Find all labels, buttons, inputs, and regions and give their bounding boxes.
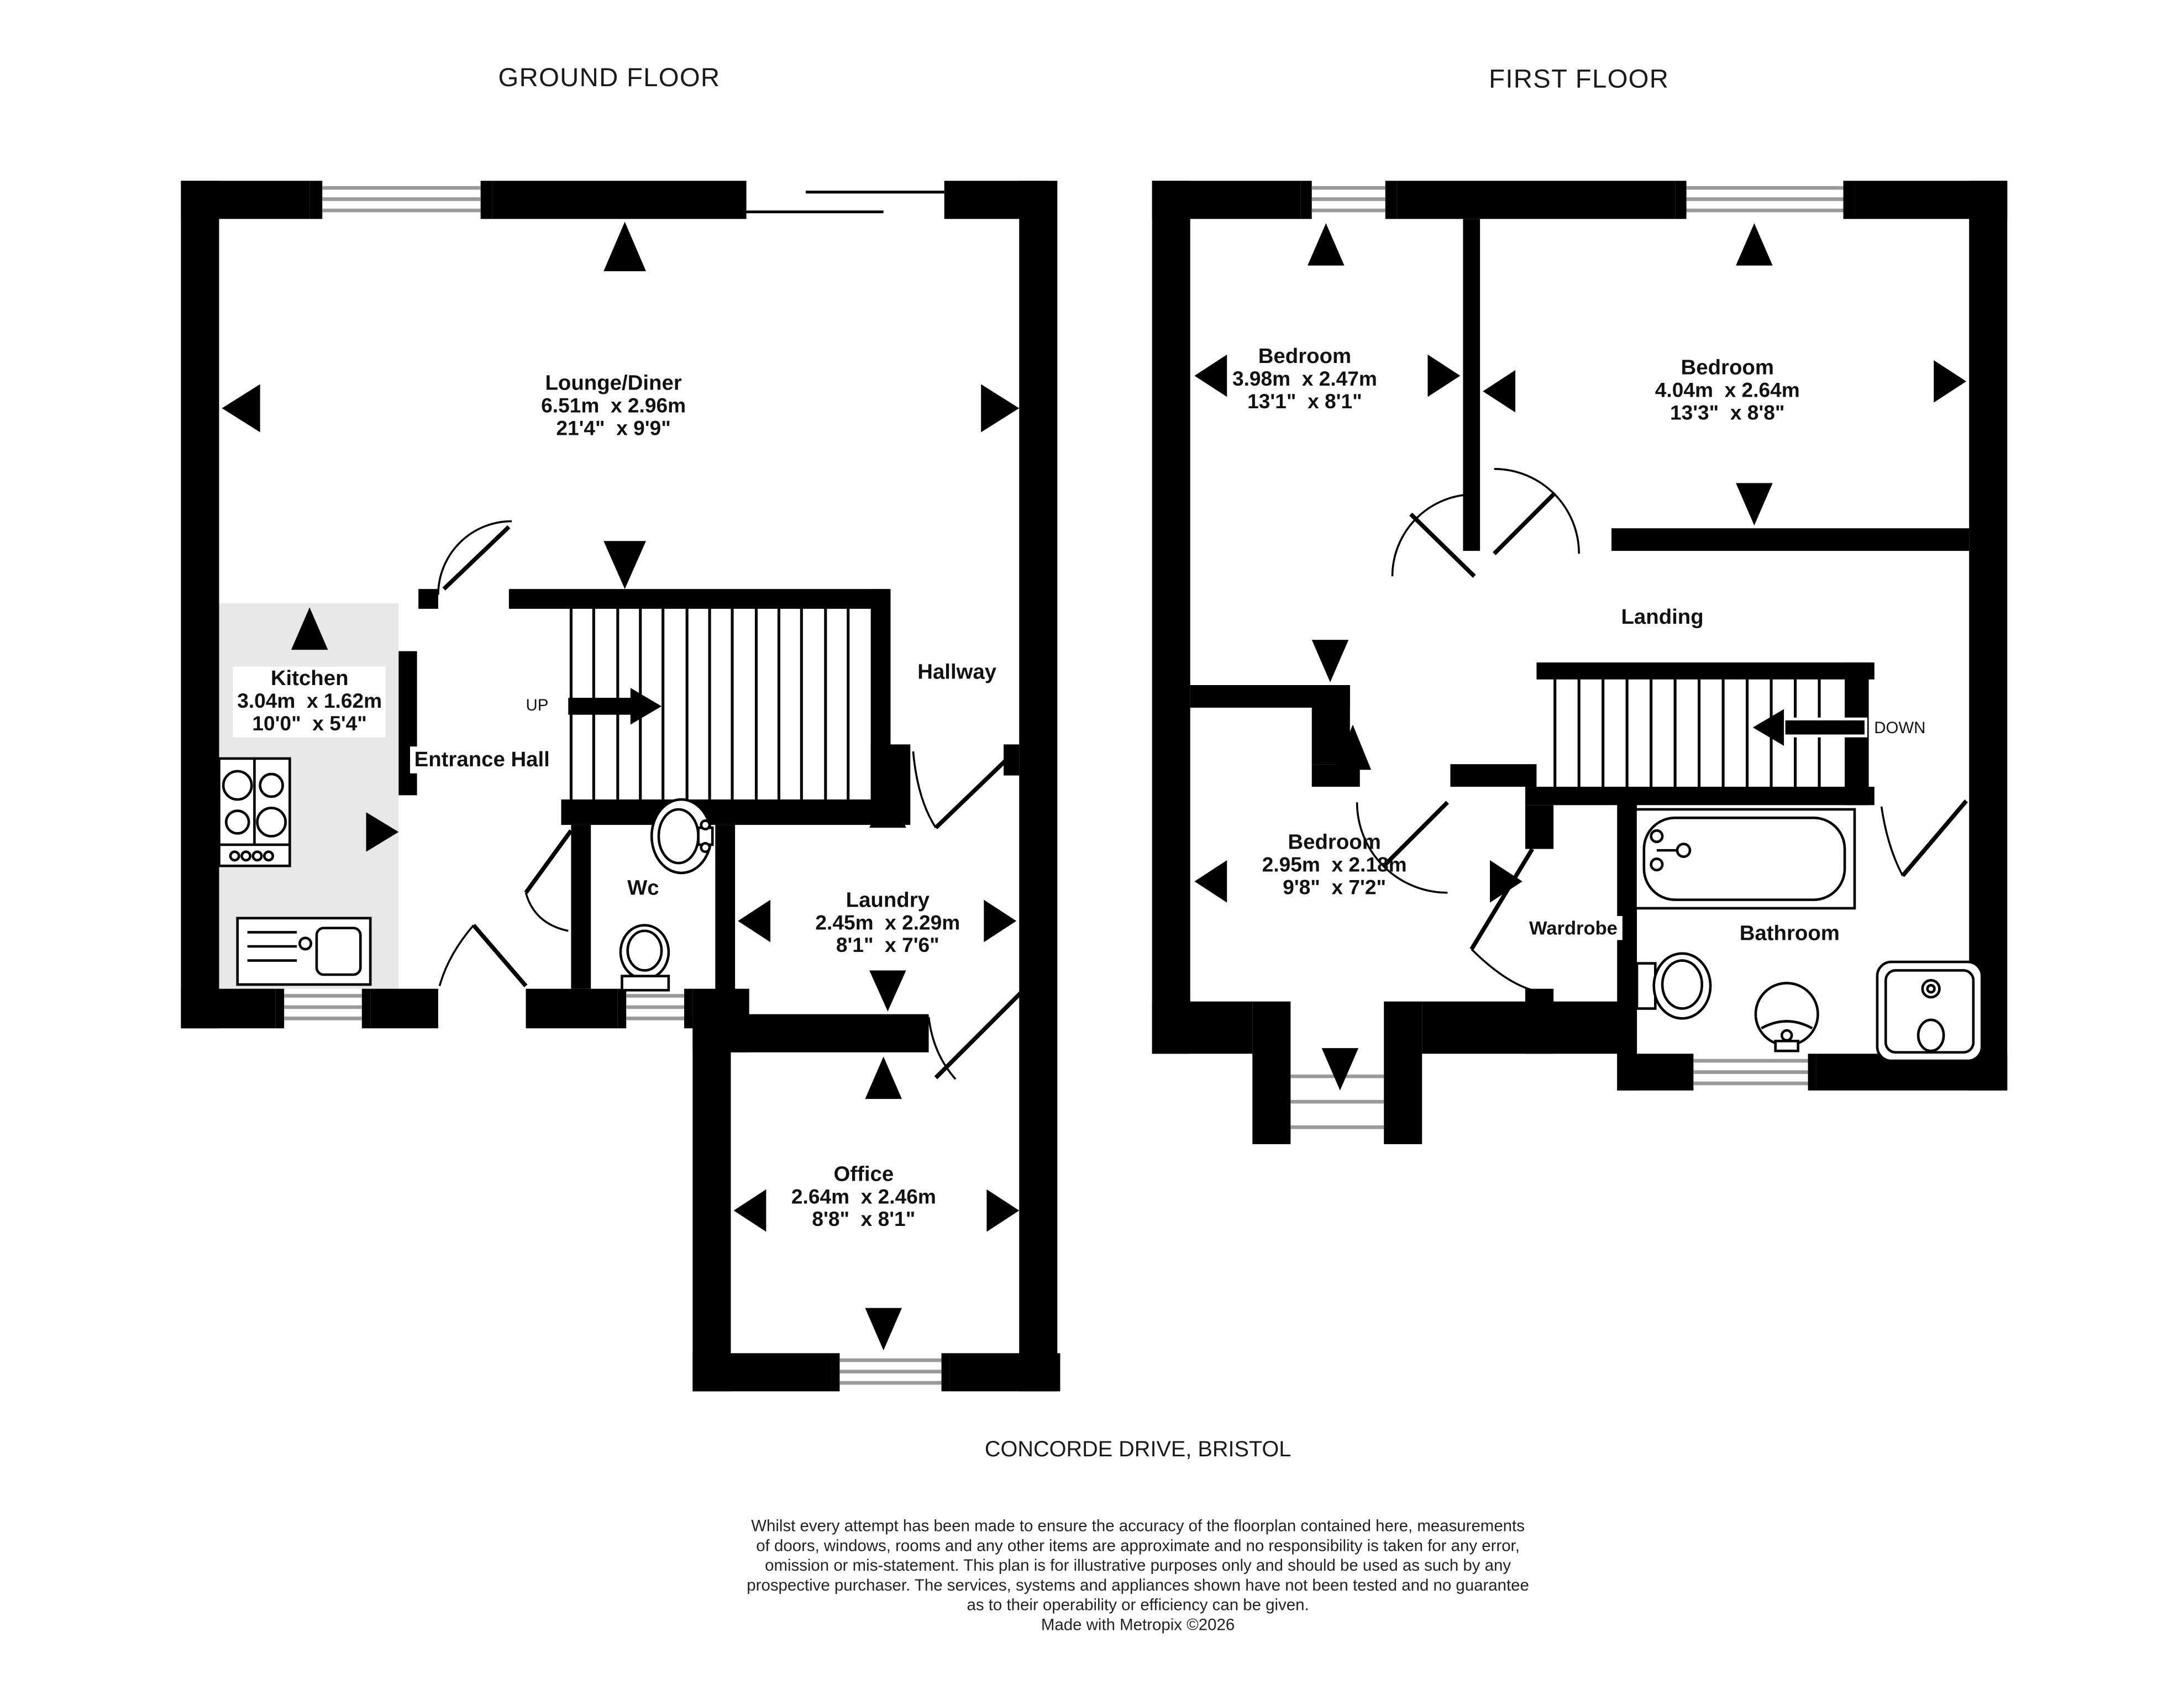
wall bbox=[1617, 1054, 1685, 1090]
window-post bbox=[1675, 181, 1686, 219]
lounge-door bbox=[438, 521, 512, 594]
window-post bbox=[309, 181, 322, 219]
window-post bbox=[1685, 1054, 1693, 1090]
measure-arrow-left-icon bbox=[738, 900, 770, 943]
window-post bbox=[481, 181, 492, 219]
wall bbox=[692, 1014, 731, 1392]
wall bbox=[398, 651, 417, 796]
window-post bbox=[618, 989, 626, 1029]
measure-arrow-right-icon bbox=[1934, 360, 1966, 403]
hob-icon bbox=[219, 759, 290, 866]
room-label-bedroom-1: Bedroom 3.98m x 2.47m 13'1" x 8'1" bbox=[1232, 346, 1377, 414]
room-dim-metric: 3.04m x 1.62m bbox=[237, 691, 382, 713]
floorplan-canvas: GROUND FLOOR FIRST FLOOR Lounge/Diner 6.… bbox=[0, 0, 2184, 1695]
measure-arrow-up-icon bbox=[865, 1056, 902, 1099]
room-label-bedroom-3: Bedroom 2.95m x 2.18m 9'8" x 7'2" bbox=[1262, 832, 1407, 900]
room-dim-imperial: 8'1" x 7'6" bbox=[815, 935, 960, 958]
window-post bbox=[362, 989, 370, 1029]
measure-arrow-left-icon bbox=[1194, 860, 1227, 903]
wall bbox=[1397, 181, 1675, 219]
wc-window bbox=[626, 996, 684, 1018]
wall bbox=[1969, 181, 2007, 1091]
room-name: Office bbox=[791, 1164, 936, 1187]
room-label-bedroom-2: Bedroom 4.04m x 2.64m 13'3" x 8'8" bbox=[1655, 357, 1800, 425]
window-post bbox=[1385, 181, 1397, 219]
room-dim-metric: 4.04m x 2.64m bbox=[1655, 380, 1800, 403]
window-post bbox=[1844, 181, 1855, 219]
wall bbox=[526, 989, 618, 1029]
wall bbox=[715, 825, 735, 1014]
window-post bbox=[684, 989, 692, 1029]
room-name: Laundry bbox=[815, 890, 960, 913]
room-label-office: Office 2.64m x 2.46m 8'8" x 8'1" bbox=[791, 1164, 936, 1232]
pedestal-sink-icon bbox=[1756, 983, 1818, 1051]
window-post bbox=[1300, 181, 1311, 219]
measure-arrow-up-icon bbox=[603, 222, 646, 271]
wall bbox=[1536, 662, 1874, 680]
wall bbox=[509, 589, 886, 609]
ground-floor-title: GROUND FLOOR bbox=[498, 62, 721, 93]
room-name: Bedroom bbox=[1655, 357, 1800, 380]
wall bbox=[370, 989, 438, 1029]
measure-arrow-down-icon bbox=[1312, 640, 1349, 682]
stairs-up bbox=[568, 609, 848, 799]
measure-arrow-right-icon bbox=[984, 900, 1016, 943]
room-label-lounge-diner: Lounge/Diner 6.51m x 2.96m 21'4" x 9'9" bbox=[541, 373, 686, 441]
room-label-kitchen: Kitchen 3.04m x 1.62m 10'0" x 5'4" bbox=[233, 667, 386, 738]
room-name: Lounge/Diner bbox=[541, 373, 686, 396]
window-post bbox=[1808, 1054, 1817, 1090]
lounge-window bbox=[322, 188, 480, 210]
room-label-laundry: Laundry 2.45m x 2.29m 8'1" x 7'6" bbox=[815, 890, 960, 958]
stairs-down bbox=[1555, 680, 1866, 787]
measure-arrow-right-icon bbox=[986, 1189, 1019, 1232]
room-name: Bedroom bbox=[1262, 832, 1407, 855]
room-dim-metric: 2.95m x 2.18m bbox=[1262, 855, 1407, 877]
room-dim-imperial: 13'1" x 8'1" bbox=[1232, 391, 1377, 414]
room-dim-imperial: 8'8" x 8'1" bbox=[791, 1209, 936, 1232]
wall bbox=[1152, 1002, 1253, 1054]
open-divider-lines bbox=[747, 192, 944, 212]
hallway-door bbox=[913, 751, 1012, 828]
wc-toilet-icon bbox=[621, 925, 669, 991]
room-label-wardrobe: Wardrobe bbox=[1525, 916, 1621, 940]
wall bbox=[181, 181, 219, 1028]
room-label-hallway: Hallway bbox=[917, 660, 996, 684]
room-label-landing: Landing bbox=[1621, 606, 1703, 629]
wall bbox=[1019, 181, 1057, 1391]
measure-arrow-right-icon bbox=[1427, 355, 1460, 397]
room-dim-metric: 2.64m x 2.46m bbox=[791, 1187, 936, 1209]
disclaimer-line: of doors, windows, rooms and any other i… bbox=[747, 1537, 1529, 1557]
window-post bbox=[276, 989, 284, 1029]
measure-arrow-up-icon bbox=[1308, 223, 1345, 266]
shower-icon bbox=[1877, 962, 1982, 1061]
stairs-up-label: UP bbox=[526, 698, 549, 715]
toilet-icon bbox=[1637, 954, 1710, 1019]
measure-arrow-down-icon bbox=[1322, 1048, 1359, 1091]
disclaimer-line: as to their operability or efficiency ca… bbox=[747, 1596, 1529, 1616]
wc-basin-icon bbox=[652, 799, 712, 873]
first-floor-plan bbox=[1152, 181, 2008, 1144]
wall bbox=[561, 799, 890, 825]
room-dim-imperial: 21'4" x 9'9" bbox=[541, 418, 686, 441]
wall bbox=[1252, 1002, 1290, 1144]
disclaimer-line: Whilst every attempt has been made to en… bbox=[747, 1517, 1529, 1537]
bedroom1-window bbox=[1312, 188, 1385, 210]
measure-arrow-down-icon bbox=[1736, 483, 1773, 525]
office-door bbox=[929, 993, 1021, 1079]
kitchen-sink-icon bbox=[238, 918, 370, 985]
wc-door bbox=[526, 830, 571, 931]
room-dim-metric: 2.45m x 2.29m bbox=[815, 913, 960, 935]
room-dim-imperial: 13'3" x 8'8" bbox=[1655, 403, 1800, 425]
bedroom2-window bbox=[1687, 188, 1844, 210]
measure-arrow-down-icon bbox=[603, 541, 646, 589]
room-label-entrance-hall: Entrance Hall bbox=[410, 746, 554, 773]
wall bbox=[1525, 989, 1553, 1054]
up-arrow-icon bbox=[568, 688, 662, 724]
property-address: CONCORDE DRIVE, BRISTOL bbox=[985, 1438, 1291, 1464]
room-name: Kitchen bbox=[237, 668, 382, 691]
wall bbox=[492, 181, 746, 219]
room-name: Bedroom bbox=[1232, 346, 1377, 369]
measure-arrow-down-icon bbox=[865, 1308, 902, 1351]
bathtub-icon bbox=[1635, 809, 1854, 908]
measure-arrow-left-icon bbox=[734, 1189, 767, 1232]
bedroom1-door bbox=[1393, 494, 1474, 576]
wall bbox=[1384, 1002, 1422, 1144]
room-dim-imperial: 9'8" x 7'2" bbox=[1262, 877, 1407, 900]
window-post bbox=[942, 1353, 950, 1391]
disclaimer-line: Made with Metropix ©2026 bbox=[747, 1616, 1529, 1636]
measure-arrow-up-icon bbox=[1736, 223, 1773, 266]
wall bbox=[692, 1353, 831, 1391]
room-dim-metric: 6.51m x 2.96m bbox=[541, 396, 686, 418]
bathroom-window bbox=[1693, 1061, 1808, 1083]
wall bbox=[1463, 219, 1480, 551]
wall bbox=[181, 989, 275, 1029]
bedroom2-door bbox=[1494, 469, 1579, 554]
wall bbox=[418, 589, 438, 609]
measure-arrow-left-icon bbox=[222, 384, 260, 432]
wall bbox=[571, 825, 591, 989]
disclaimer-text: Whilst every attempt has been made to en… bbox=[747, 1517, 1529, 1636]
first-windows bbox=[1290, 188, 1843, 1127]
measure-arrow-left-icon bbox=[1483, 370, 1515, 413]
disclaimer-line: prospective purchaser. The services, sys… bbox=[747, 1576, 1529, 1596]
kitchen-window bbox=[284, 996, 362, 1018]
bay-window bbox=[1290, 1076, 1384, 1127]
first-floor-title: FIRST FLOOR bbox=[1489, 64, 1669, 94]
wall bbox=[1525, 805, 1553, 849]
wall bbox=[1152, 181, 1190, 1054]
wall bbox=[1611, 528, 1969, 551]
window-post bbox=[831, 1353, 839, 1391]
measure-arrow-down-icon bbox=[869, 970, 906, 1011]
room-label-bathroom: Bathroom bbox=[1735, 920, 1844, 947]
disclaimer-line: omission or mis-statement. This plan is … bbox=[747, 1556, 1529, 1576]
room-dim-imperial: 10'0" x 5'4" bbox=[237, 713, 382, 736]
stairs-down-label: DOWN bbox=[1874, 720, 1925, 738]
measure-arrow-right-icon bbox=[981, 384, 1019, 432]
wall bbox=[1525, 787, 1875, 805]
wall bbox=[1450, 764, 1536, 787]
wall bbox=[950, 1353, 1060, 1391]
office-window bbox=[839, 1360, 941, 1383]
measure-arrow-left-icon bbox=[1194, 355, 1227, 397]
measure-arrow-right-icon bbox=[1490, 860, 1523, 903]
bathroom-door bbox=[1882, 801, 1966, 876]
room-label-wc: Wc bbox=[627, 876, 659, 900]
back-door bbox=[440, 925, 526, 986]
wall bbox=[731, 1014, 928, 1052]
room-dim-metric: 3.98m x 2.47m bbox=[1232, 369, 1377, 391]
